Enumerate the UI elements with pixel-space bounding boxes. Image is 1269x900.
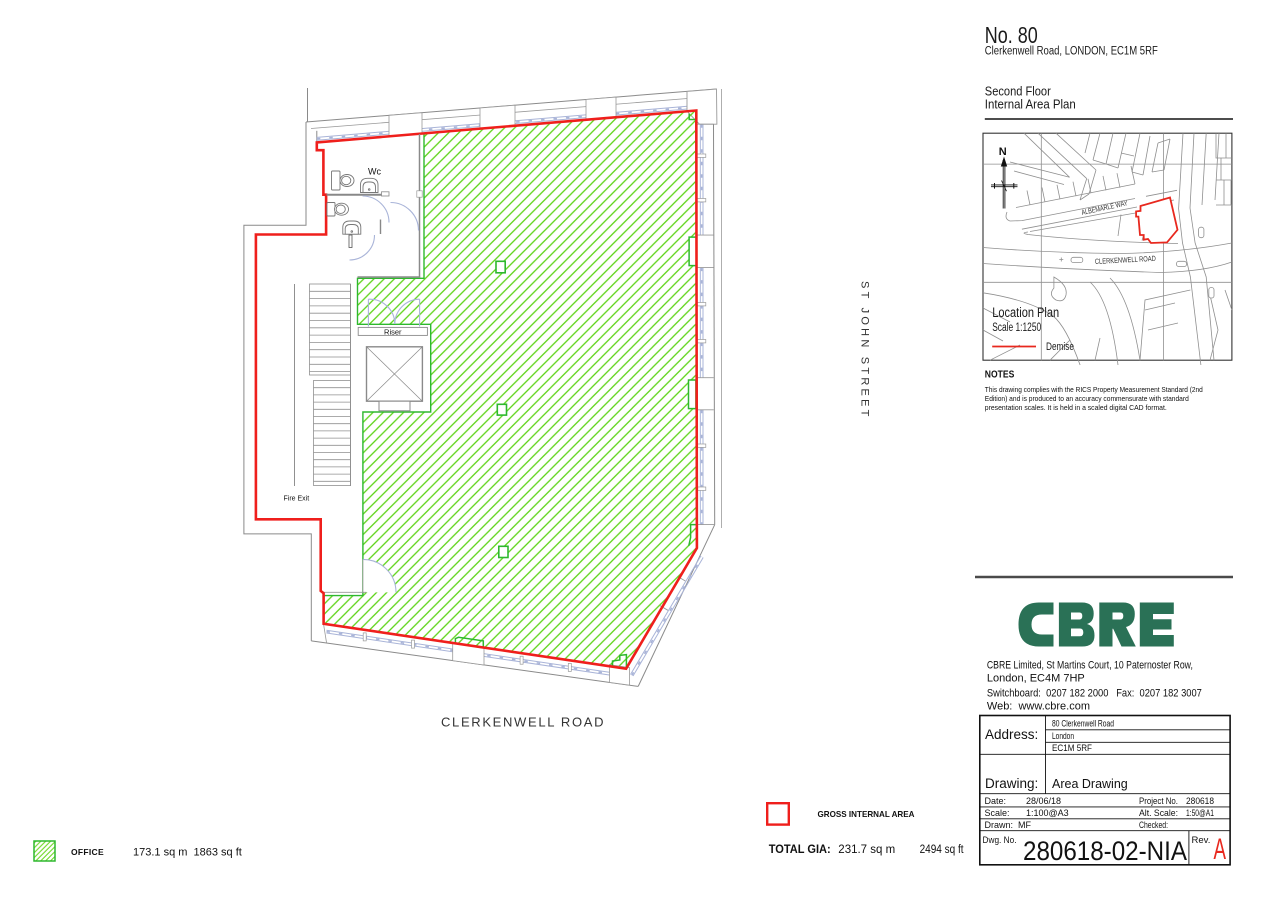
svg-text:TOTAL GIA:: TOTAL GIA: [769, 842, 831, 856]
svg-text:Area Drawing: Area Drawing [1052, 777, 1128, 791]
svg-text:1:100@A3: 1:100@A3 [1026, 808, 1069, 818]
svg-text:Switchboard: 0207 182 2000: Switchboard: 0207 182 2000 Fax: 0207 182… [987, 688, 1202, 700]
svg-text:Scale:: Scale: [985, 808, 1010, 818]
svg-text:Checked:: Checked: [1139, 820, 1168, 830]
svg-text:Wc: Wc [368, 167, 381, 177]
svg-text:Clerkenwell Road, LONDON, EC1M: Clerkenwell Road, LONDON, EC1M 5RF [985, 46, 1158, 58]
svg-text:Fire Exit: Fire Exit [284, 496, 310, 503]
svg-text:A: A [1214, 833, 1227, 866]
svg-text:Alt. Scale:: Alt. Scale: [1139, 808, 1178, 818]
svg-text:1863 sq ft: 1863 sq ft [194, 847, 242, 859]
svg-text:231.7 sq m: 231.7 sq m [838, 844, 895, 856]
svg-text:CLERKENWELL ROAD: CLERKENWELL ROAD [441, 715, 607, 730]
svg-text:MF: MF [1018, 820, 1031, 830]
svg-text:173.1 sq m: 173.1 sq m [133, 847, 187, 859]
svg-text:This drawing complies with the: This drawing complies with the RICS Prop… [985, 385, 1203, 394]
svg-text:CBRE Limited, St Martins Court: CBRE Limited, St Martins Court, 10 Pater… [987, 660, 1193, 672]
svg-text:London, EC4M 7HP: London, EC4M 7HP [987, 673, 1085, 685]
svg-text:Date:: Date: [985, 796, 1007, 806]
svg-text:N: N [999, 146, 1007, 158]
svg-text:NOTES: NOTES [985, 370, 1015, 381]
svg-text:Demise: Demise [1046, 341, 1074, 353]
svg-text:1:50@A1: 1:50@A1 [1186, 808, 1214, 818]
svg-text:28/06/18: 28/06/18 [1026, 796, 1061, 806]
svg-text:2494 sq ft: 2494 sq ft [920, 844, 965, 856]
svg-text:EC1M 5RF: EC1M 5RF [1052, 743, 1092, 753]
svg-text:Internal Area Plan: Internal Area Plan [985, 97, 1076, 112]
svg-text:Scale 1:1250: Scale 1:1250 [992, 322, 1041, 334]
svg-text:Dwg. No.: Dwg. No. [983, 835, 1017, 846]
svg-text:ST JOHN STREET: ST JOHN STREET [859, 281, 871, 420]
svg-text:Drawn:: Drawn: [985, 820, 1014, 830]
svg-text:280618: 280618 [1186, 796, 1214, 806]
svg-text:Project No.: Project No. [1139, 796, 1178, 806]
svg-text:Riser: Riser [384, 327, 402, 336]
svg-text:Location Plan: Location Plan [992, 305, 1059, 320]
svg-text:Edition) and is produced to an: Edition) and is produced to an accuracy … [985, 394, 1189, 403]
svg-text:presentation scales. It is hel: presentation scales. It is held in a sca… [985, 403, 1167, 412]
svg-text:GROSS INTERNAL AREA: GROSS INTERNAL AREA [818, 809, 915, 819]
svg-text:London: London [1052, 731, 1074, 741]
svg-text:Rev.: Rev. [1192, 835, 1211, 846]
svg-text:Drawing:: Drawing: [985, 776, 1038, 791]
svg-text:Address:: Address: [985, 727, 1038, 742]
svg-text:280618-02-NIA: 280618-02-NIA [1023, 836, 1187, 866]
svg-text:Web: www.cbre.com: Web: www.cbre.com [987, 701, 1090, 713]
svg-text:OFFICE: OFFICE [71, 847, 104, 857]
svg-text:80 Clerkenwell Road: 80 Clerkenwell Road [1052, 719, 1114, 729]
svg-text:No. 80: No. 80 [985, 22, 1038, 48]
